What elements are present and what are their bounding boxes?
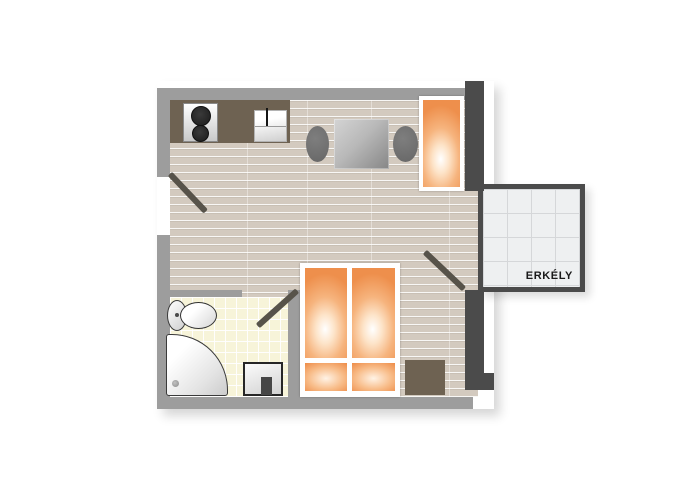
wall-pier-top-right bbox=[465, 81, 484, 191]
toilet-flush-dot bbox=[175, 313, 179, 317]
floorplan-canvas: ERKÉLY bbox=[0, 0, 700, 500]
wall-pier-foot bbox=[484, 373, 494, 390]
bed-mattress bbox=[352, 268, 395, 358]
wardrobe-front bbox=[423, 100, 460, 187]
washbasin-pedestal bbox=[261, 377, 272, 395]
bed-mattress bbox=[305, 268, 347, 358]
pillow-icon bbox=[305, 363, 347, 391]
nightstand-icon bbox=[405, 360, 445, 395]
shower-drain bbox=[172, 380, 179, 387]
wardrobe-icon bbox=[419, 96, 464, 191]
wall-pier-bottom-right bbox=[465, 290, 484, 390]
bathroom-wall-top bbox=[170, 290, 242, 297]
wall-bottom bbox=[157, 397, 473, 409]
balcony: ERKÉLY bbox=[478, 184, 585, 292]
bathroom-wall-right bbox=[288, 290, 300, 397]
wall-left-upper bbox=[157, 88, 170, 177]
burner-icon bbox=[191, 106, 211, 126]
toilet-icon bbox=[180, 302, 217, 329]
balcony-label: ERKÉLY bbox=[526, 270, 573, 282]
sink-divider bbox=[255, 126, 286, 127]
burner-icon bbox=[192, 125, 209, 142]
chair-icon bbox=[393, 126, 418, 162]
dining-table-icon bbox=[334, 119, 389, 169]
chair-icon bbox=[306, 126, 329, 162]
faucet-icon bbox=[266, 108, 268, 127]
double-bed-icon bbox=[300, 263, 400, 397]
pillow-icon bbox=[352, 363, 395, 391]
